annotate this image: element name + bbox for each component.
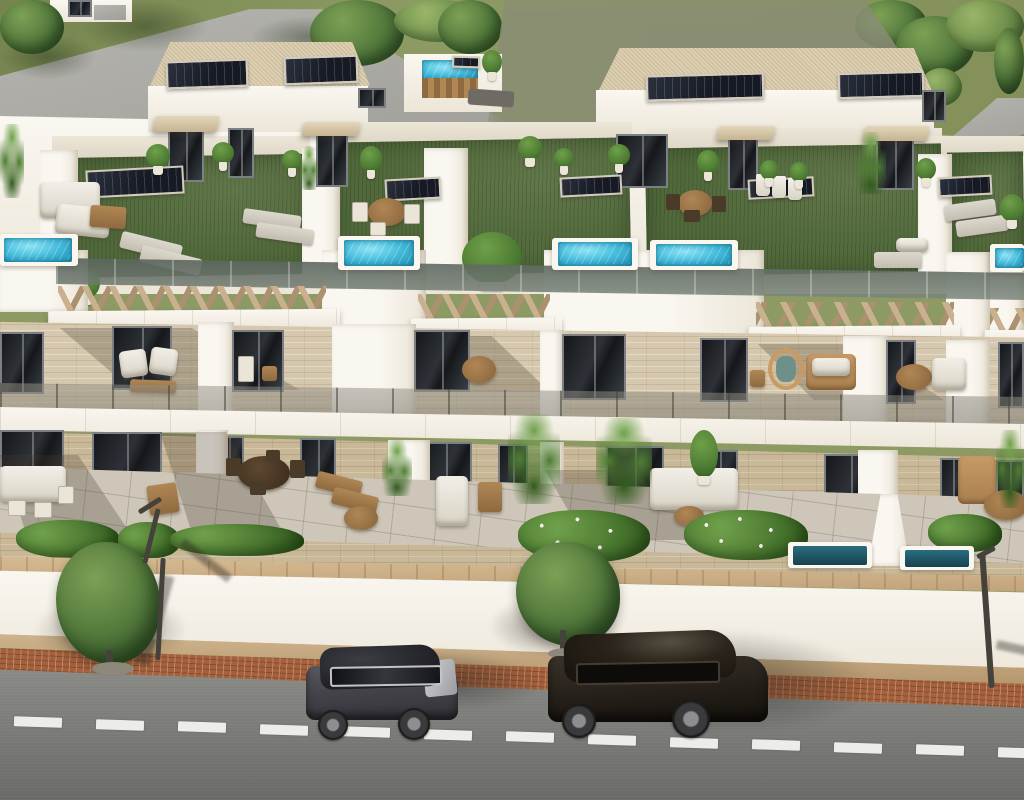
balcony-round-table-1 <box>462 356 496 383</box>
roof-plant-7 <box>554 148 574 168</box>
lawn-solar-5 <box>938 175 993 198</box>
street-tree-1-base <box>92 662 134 675</box>
scene <box>0 0 1024 800</box>
roof-dining-chair-2 <box>404 204 420 224</box>
car-suv-wheel-front <box>672 700 710 738</box>
road-dash-5 <box>342 726 390 738</box>
rooftop-pool-1-water <box>4 238 72 262</box>
car-suv-wheel-rear <box>562 704 596 738</box>
roof-pot-plant-1 <box>760 160 778 180</box>
roof-dining-chair-6 <box>684 210 700 222</box>
roofbox-a-vent <box>358 88 386 108</box>
roofbox-b-solar-1 <box>646 72 765 101</box>
jacuzzi-cover <box>452 56 480 69</box>
rooftop-pool-4-water <box>656 244 732 266</box>
road-dash-10 <box>752 739 800 751</box>
patio-dark-chair-1 <box>226 458 241 476</box>
palm-right-edge <box>996 430 1024 508</box>
patio-wood-chair <box>478 482 502 512</box>
roof-coffee-table <box>89 205 126 229</box>
banana-plant-2 <box>596 418 652 504</box>
balcony-armchair-3 <box>932 358 966 390</box>
banana-plant-1 <box>508 414 560 504</box>
roofbox-a-solar-2 <box>284 55 359 86</box>
roof-awning-2 <box>301 122 360 136</box>
roof-plant-11 <box>1000 194 1024 222</box>
roof-ficus <box>856 132 886 194</box>
road-dash-3 <box>178 721 226 733</box>
roof-dining-chair-1 <box>352 202 368 222</box>
patio-plant <box>690 430 718 478</box>
road-dash-6 <box>424 729 472 741</box>
balcony-chair <box>238 356 254 382</box>
patio-dark-chair-2 <box>290 460 305 478</box>
road-dash-11 <box>834 742 882 754</box>
rooftop-pool-5-water <box>995 248 1024 268</box>
jacuzzi-lounger <box>467 88 514 107</box>
patio-chair-1 <box>8 500 26 516</box>
roof-awning-1 <box>152 116 220 132</box>
jacuzzi-plant <box>482 50 502 74</box>
road-dash-4 <box>260 724 308 736</box>
roof-door-2 <box>316 131 348 187</box>
balcony-armchair-2 <box>148 346 178 376</box>
roof-plant-5 <box>300 146 318 190</box>
lawn-solar-1 <box>85 165 184 198</box>
roof-plant-6 <box>518 136 542 160</box>
balcony-side-table <box>750 370 765 387</box>
balcony-door-6 <box>700 338 748 402</box>
ground-pool-2-water <box>905 550 969 567</box>
lawn-solar-2 <box>384 177 441 202</box>
patio-palm <box>382 440 412 496</box>
roofbox-b-solar-2 <box>838 71 925 99</box>
roof-plant-9 <box>697 150 719 174</box>
balcony-sofa-cushions <box>812 358 850 376</box>
roof-awning-3 <box>716 126 775 140</box>
roof-plant-10 <box>916 158 936 180</box>
road-dash-7 <box>506 731 554 743</box>
background-tree-4 <box>438 0 502 54</box>
balcony-egg-cushion <box>776 356 796 382</box>
road-dash-13 <box>998 747 1024 759</box>
roof-plant-3 <box>282 150 302 170</box>
patio-ottoman <box>344 506 378 530</box>
car-hatchback-windows <box>330 665 442 687</box>
roofbox-a-solar-1 <box>166 59 249 90</box>
patio-chair-2 <box>34 502 52 518</box>
rooftop-pool-2-water <box>344 240 414 266</box>
roof-dining-chair-4 <box>666 194 680 210</box>
roof-pot-2 <box>772 176 786 198</box>
balcony-door-4 <box>414 330 470 392</box>
pergola-4-lattice <box>990 308 1024 332</box>
road-dash-8 <box>588 734 636 746</box>
road-dash-1 <box>14 716 62 728</box>
car-hatchback-wheel-front <box>398 708 430 740</box>
ground-pool-1-water <box>793 546 867 565</box>
road-dash-2 <box>96 719 144 731</box>
neighbor-house-door <box>68 0 92 17</box>
patio-dark-chair-3 <box>250 482 266 495</box>
balcony-basket <box>262 366 277 381</box>
roof-daybed <box>874 252 922 268</box>
pergola-1-lattice <box>58 286 326 312</box>
patio-dark-chair-4 <box>266 450 280 462</box>
roof-pot-plant-2 <box>790 162 808 182</box>
background-tree-1 <box>0 0 64 54</box>
background-tree-8 <box>994 28 1024 94</box>
roof-plant-4 <box>360 146 382 172</box>
road-dash-12 <box>916 744 964 756</box>
palm-left-edge <box>0 124 24 198</box>
car-hatchback-wheel-rear <box>318 710 348 740</box>
roofbox-b-vent <box>922 90 946 122</box>
balcony-armchair-1 <box>118 348 148 378</box>
neighbor-house-steps <box>94 5 126 20</box>
road-dash-9 <box>670 737 718 749</box>
roof-plant-2 <box>212 142 234 164</box>
balcony-door-5 <box>562 334 626 400</box>
patio-sofa-center <box>650 468 738 510</box>
roof-dining-chair-5 <box>712 196 726 212</box>
pergola-2-lattice <box>418 294 550 320</box>
roof-dining-chair-3 <box>370 222 386 236</box>
patio-sofa-l <box>436 476 468 526</box>
balcony-round-table-2 <box>896 364 932 390</box>
patio-chair-3 <box>58 486 74 504</box>
roof-plant-8 <box>608 144 630 166</box>
rooftop-pool-3-water <box>558 242 632 266</box>
patio-dining-table-white <box>0 466 66 502</box>
lawn-solar-3 <box>560 174 623 197</box>
patio-armchair <box>146 482 180 516</box>
roof-bench <box>896 238 928 252</box>
roof-plant-1 <box>146 144 170 168</box>
car-suv-windows <box>576 661 720 686</box>
pergola-3-lattice <box>756 302 954 328</box>
